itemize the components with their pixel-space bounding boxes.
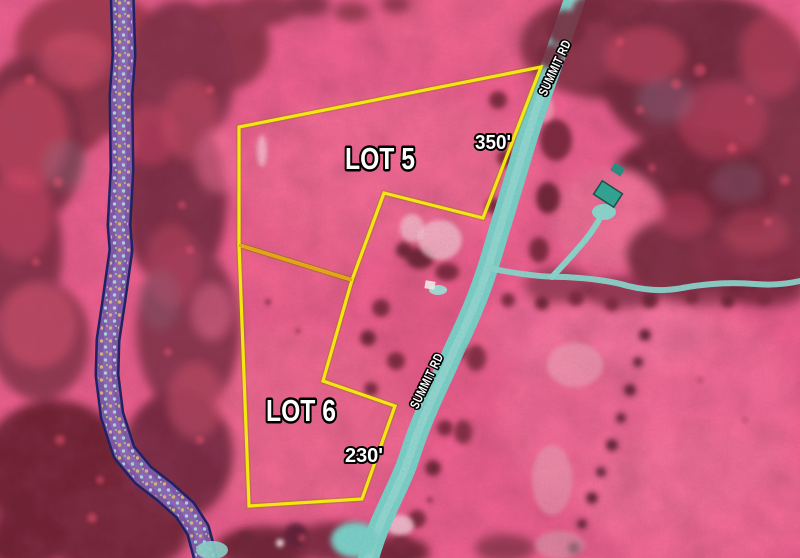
- lot5-label: LOT 5: [345, 141, 415, 176]
- parcel-aerial-map: LOT 5 LOT 6 350' 230' SUMMIT RD SUMMIT R…: [0, 0, 800, 558]
- parcel-map-page: LOT 5 LOT 6 350' 230' SUMMIT RD SUMMIT R…: [0, 0, 800, 558]
- lot6-frontage-label: 230': [345, 445, 383, 467]
- road-widening: [331, 522, 379, 558]
- outbuilding: [424, 280, 435, 290]
- lot5-frontage-label: 350': [475, 132, 511, 154]
- lot6-label: LOT 6: [266, 393, 336, 428]
